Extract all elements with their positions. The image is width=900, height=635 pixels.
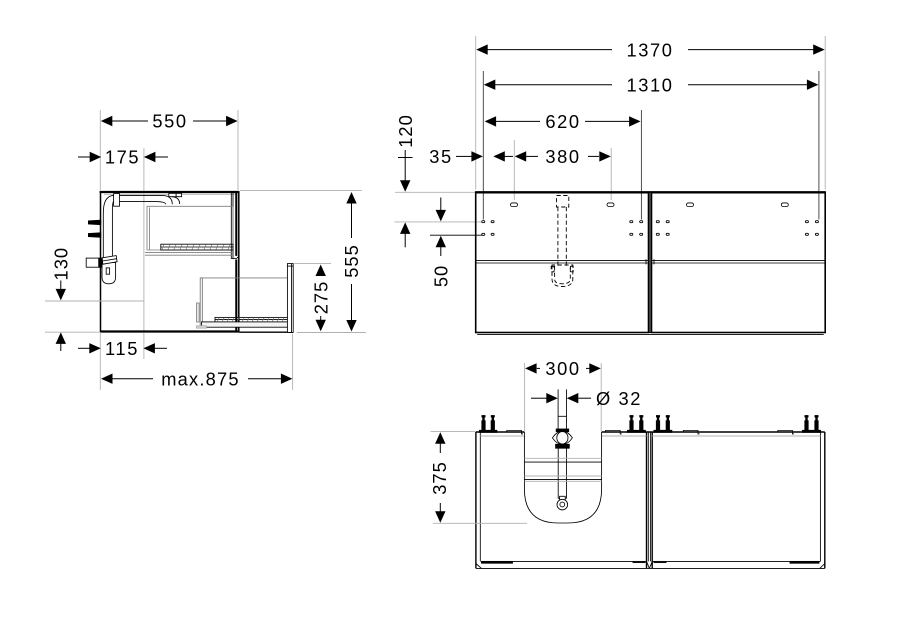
svg-text:Ø 32: Ø 32 <box>596 388 642 409</box>
svg-text:130: 130 <box>51 247 72 281</box>
svg-text:115: 115 <box>105 338 139 359</box>
svg-text:1370: 1370 <box>626 39 673 60</box>
svg-text:555: 555 <box>341 244 362 278</box>
svg-text:175: 175 <box>105 147 140 168</box>
svg-text:620: 620 <box>545 111 580 132</box>
svg-text:550: 550 <box>152 111 187 132</box>
svg-text:max.875: max.875 <box>161 368 240 389</box>
svg-text:35: 35 <box>429 146 453 167</box>
svg-text:380: 380 <box>545 146 580 167</box>
svg-text:375: 375 <box>429 461 450 495</box>
svg-text:50: 50 <box>431 265 452 287</box>
svg-text:275: 275 <box>310 281 331 315</box>
svg-text:120: 120 <box>395 114 416 148</box>
svg-text:300: 300 <box>545 358 580 379</box>
svg-text:1310: 1310 <box>626 74 673 95</box>
